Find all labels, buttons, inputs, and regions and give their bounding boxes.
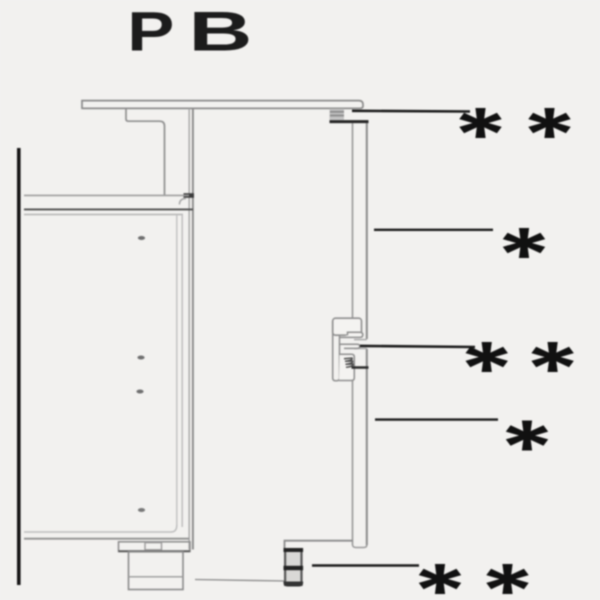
svg-text:P: P <box>127 0 174 62</box>
svg-text:B: B <box>189 0 253 63</box>
